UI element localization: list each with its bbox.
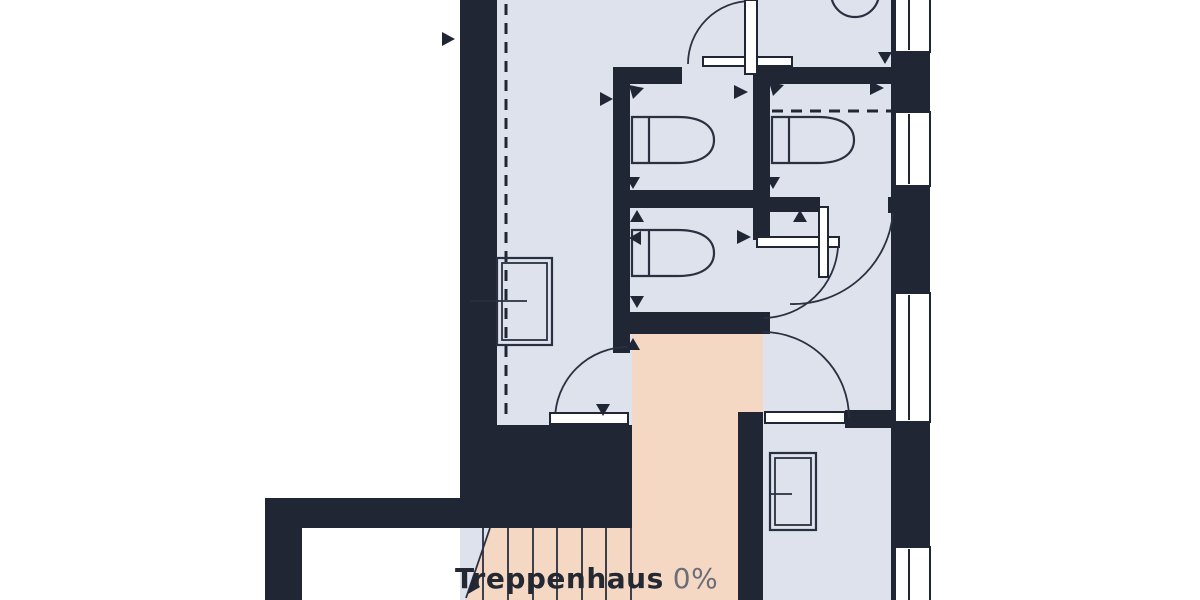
door-leaf bbox=[550, 413, 628, 424]
wall-wc-divider bbox=[613, 190, 753, 208]
room-percentage: 0% bbox=[673, 562, 718, 595]
wall-corridor-right bbox=[738, 412, 763, 600]
floor-plan-canvas: Treppenhaus0% bbox=[0, 0, 1200, 600]
room-name: Treppenhaus bbox=[455, 562, 664, 595]
floor-plan-drawing bbox=[0, 0, 1200, 600]
wall-wc3-bottom bbox=[613, 312, 770, 334]
wall-bottom-band bbox=[265, 498, 632, 528]
wall-door-stub bbox=[888, 197, 897, 213]
room-label: Treppenhaus0% bbox=[455, 562, 718, 595]
wall-wc-middle bbox=[753, 67, 770, 240]
wall-top-band-left bbox=[613, 67, 682, 84]
wall-exterior-segment bbox=[893, 186, 930, 293]
door-leaf bbox=[745, 0, 757, 74]
wall-wc2-bottom bbox=[753, 197, 820, 212]
wall-left-column bbox=[460, 0, 497, 430]
window-icon bbox=[895, 0, 930, 52]
wall-exterior-segment bbox=[893, 422, 930, 547]
wall-exterior-segment bbox=[893, 52, 930, 112]
wall-room-bottom bbox=[845, 410, 893, 428]
door-leaf bbox=[819, 207, 828, 277]
wall-wc-left bbox=[613, 67, 630, 353]
window-icon bbox=[895, 293, 930, 422]
window-icon bbox=[895, 547, 930, 600]
door-leaf bbox=[765, 412, 845, 423]
wall-bottom-left-column bbox=[265, 498, 302, 600]
wall-top-band-right bbox=[758, 67, 893, 84]
window-icon bbox=[895, 112, 930, 186]
stair-corridor-highlight bbox=[632, 334, 763, 414]
